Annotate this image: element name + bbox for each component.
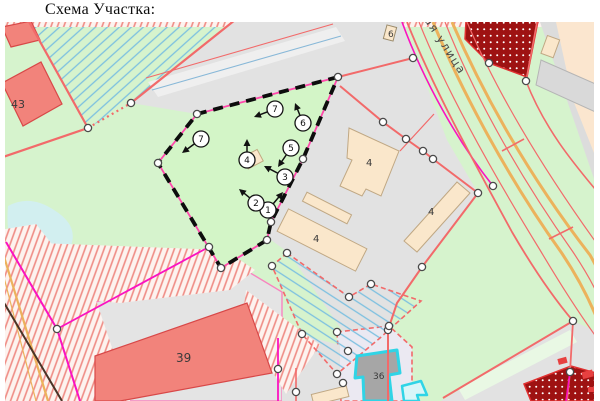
svg-text:2: 2 xyxy=(253,199,259,209)
svg-text:7: 7 xyxy=(198,135,204,145)
boundary-vertex xyxy=(53,325,60,332)
boundary-vertex xyxy=(474,189,481,196)
label-building-43: 43 xyxy=(11,98,25,111)
boundary-vertex xyxy=(569,317,576,324)
label-building-6: 6 xyxy=(388,30,394,40)
boundary-vertex xyxy=(485,59,492,66)
boundary-vertex xyxy=(385,322,392,329)
label-building-4b: 4 xyxy=(428,207,434,218)
svg-text:4: 4 xyxy=(244,156,250,166)
boundary-vertex xyxy=(402,135,409,142)
boundary-vertex xyxy=(267,218,274,225)
site-plan-map: 12345677 4339444636 ая улица xyxy=(0,0,600,401)
boundary-vertex xyxy=(379,118,386,125)
boundary-vertex xyxy=(339,379,346,386)
boundary-vertex xyxy=(419,147,426,154)
svg-text:7: 7 xyxy=(272,105,278,115)
boundary-vertex xyxy=(268,262,275,269)
boundary-vertex xyxy=(292,388,299,395)
boundary-vertex xyxy=(345,293,352,300)
boundary-vertex xyxy=(429,155,436,162)
svg-text:5: 5 xyxy=(288,144,294,154)
boundary-vertex xyxy=(127,99,134,106)
boundary-vertex xyxy=(489,182,496,189)
svg-text:6: 6 xyxy=(300,119,306,129)
boundary-vertex xyxy=(274,365,281,372)
boundary-vertex xyxy=(409,54,416,61)
boundary-vertex xyxy=(193,110,200,117)
boundary-vertex xyxy=(334,73,341,80)
boundary-vertex xyxy=(333,328,340,335)
boundary-vertex xyxy=(205,243,212,250)
boundary-vertex xyxy=(217,264,224,271)
boundary-vertex xyxy=(418,263,425,270)
boundary-vertex xyxy=(333,370,340,377)
boundary-vertex xyxy=(283,249,290,256)
boundary-vertex xyxy=(367,280,374,287)
boundary-vertex xyxy=(298,330,305,337)
boundary-vertex xyxy=(344,347,351,354)
label-building-4c: 4 xyxy=(313,234,319,245)
label-building-39: 39 xyxy=(176,351,191,365)
svg-text:1: 1 xyxy=(265,206,271,216)
boundary-vertex xyxy=(522,77,529,84)
svg-text:3: 3 xyxy=(282,173,288,183)
boundary-vertex xyxy=(154,159,161,166)
label-building-36: 36 xyxy=(373,372,385,382)
boundary-vertex xyxy=(84,124,91,131)
boundary-vertex xyxy=(263,236,270,243)
label-building-4a: 4 xyxy=(366,158,372,169)
boundary-vertex xyxy=(299,155,306,162)
boundary-vertex xyxy=(566,368,573,375)
